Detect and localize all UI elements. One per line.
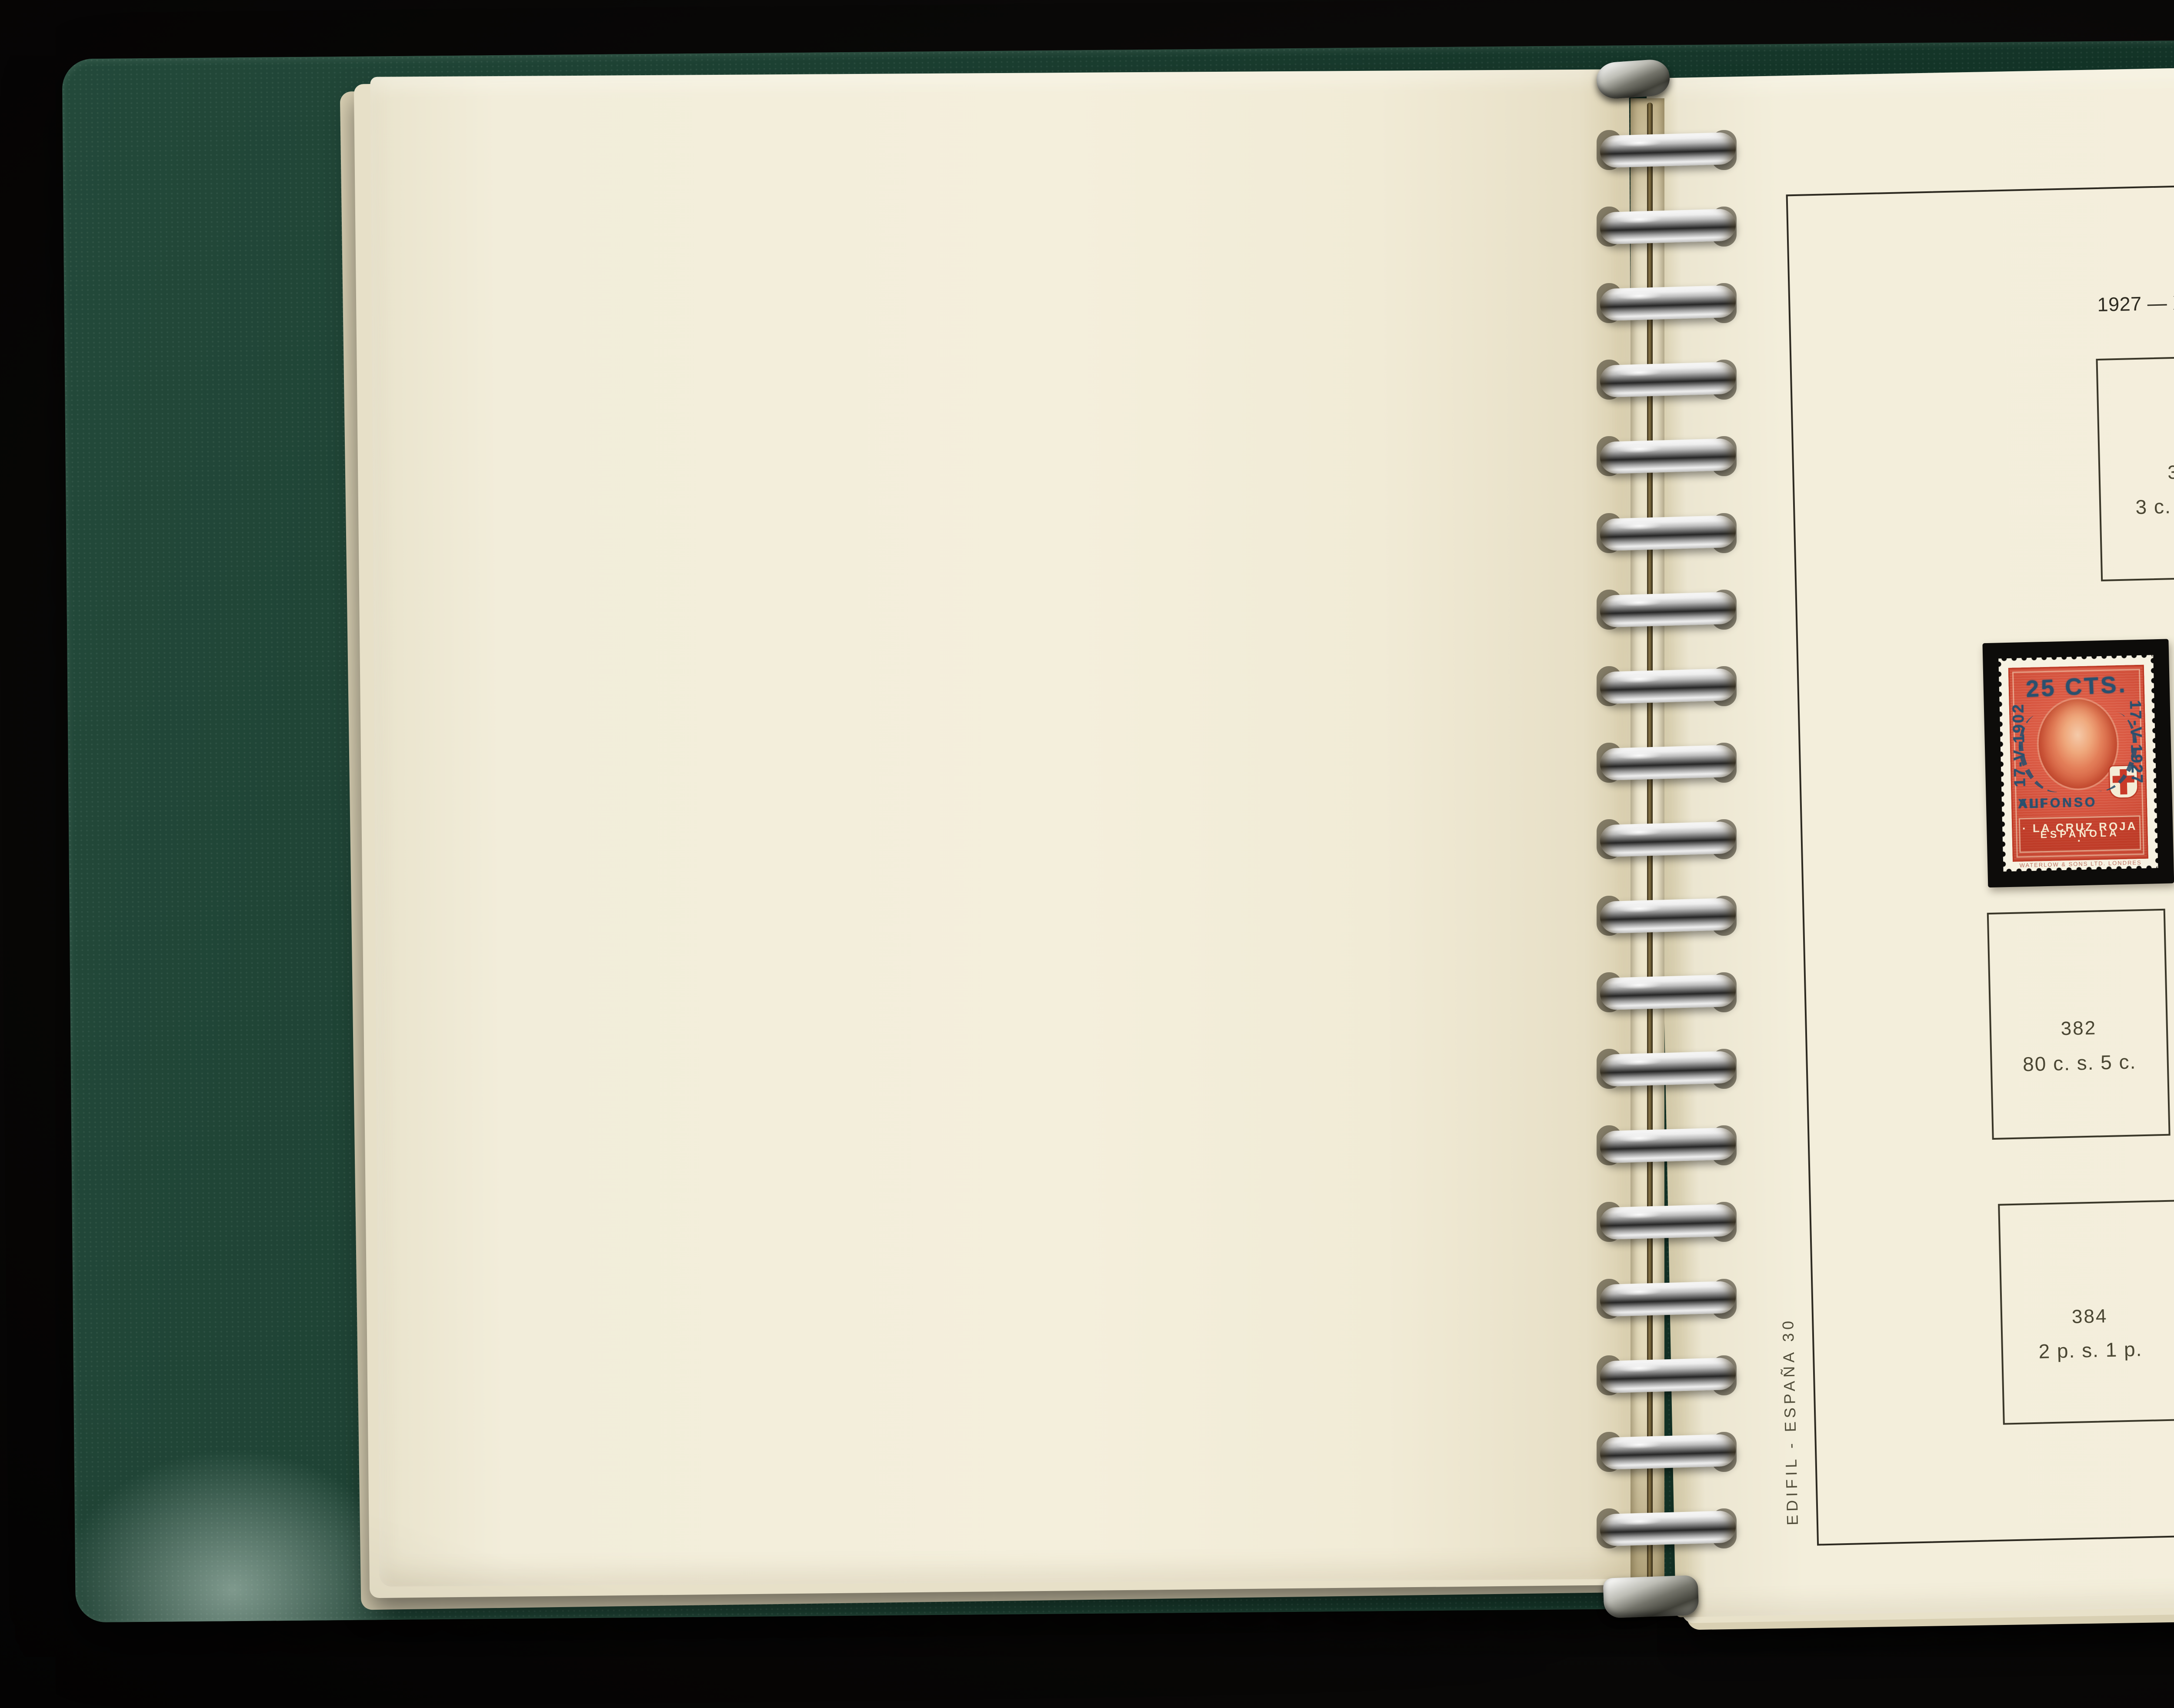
- binder-ring: [1600, 898, 1736, 934]
- binder-ring: [1600, 1434, 1736, 1470]
- binder-ring: [1600, 744, 1736, 781]
- binder-ring: [1600, 821, 1736, 857]
- binder-rings: [0, 0, 2174, 1708]
- binder-ring: [1600, 1051, 1736, 1087]
- binder-ring: [1600, 668, 1736, 704]
- binder-ring: [1600, 974, 1736, 1011]
- binder-ring: [1600, 591, 1736, 627]
- binder-ring: [1600, 515, 1736, 551]
- binder-ring: [1600, 1128, 1736, 1164]
- binder-ring: [1600, 1204, 1736, 1240]
- binder-ring: [1600, 1357, 1736, 1393]
- binder-ring: [1600, 1510, 1736, 1546]
- binder-ring: [1600, 438, 1736, 474]
- binder-ring: [1600, 132, 1736, 168]
- binder-ring: [1600, 285, 1736, 321]
- binder-ring: [1600, 209, 1736, 245]
- binder-ring: [1600, 362, 1736, 398]
- photo-stage: ESPAÑA 1927 — XXV Aniversario Coronación…: [0, 0, 2174, 1708]
- binder-ring: [1600, 1281, 1736, 1317]
